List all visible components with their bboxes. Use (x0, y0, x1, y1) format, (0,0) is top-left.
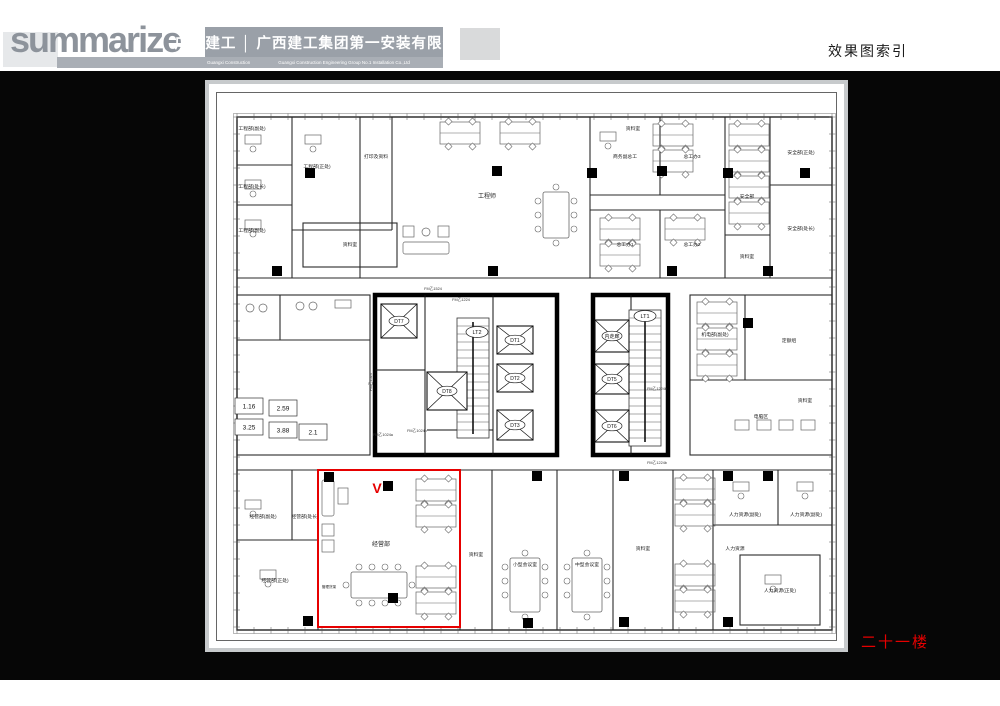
column (763, 471, 773, 481)
desk (797, 482, 813, 499)
room-label: 总工办3 (683, 153, 700, 160)
highlight-box (318, 470, 460, 627)
svg-text:1.16: 1.16 (243, 404, 256, 411)
room-label: 管理货架 (322, 584, 337, 589)
column (763, 266, 773, 276)
room-label: 资料室 (469, 551, 484, 558)
room-label: 工程部(正处) (303, 163, 331, 170)
room-label: 人力资源(正处) (764, 587, 796, 594)
column (523, 618, 533, 628)
column (587, 168, 597, 178)
drawing-sheet: LT2LT1DT7DT8DT1DT2DT3内走廊DT5DT61.162.593.… (205, 80, 848, 652)
workstation-pod (416, 501, 456, 533)
room-label: 人力资源 (725, 545, 744, 552)
page-header: summarize 广西建工 │ 广西建工集团第一安装有限公司 Guangxi … (0, 0, 1000, 71)
desk (305, 135, 321, 152)
door-tag: FM乙1524 (368, 373, 373, 391)
room-label: 安全部(正处) (787, 149, 815, 156)
column (303, 616, 313, 626)
elevator-DT7: DT7 (381, 304, 417, 338)
room-label: 安全部(处长) (787, 225, 815, 232)
conference-table (343, 564, 415, 606)
floor-label: 二十一楼 (861, 631, 929, 652)
header-gray-block (460, 28, 500, 60)
column (723, 617, 733, 627)
door-tag: FM乙1224b (647, 460, 667, 465)
door-tag: FM乙1024b (407, 428, 427, 433)
svg-text:3.25: 3.25 (243, 425, 256, 432)
column (743, 318, 753, 328)
door-tag: FM乙1224b (647, 386, 667, 391)
workstation-pod (697, 350, 737, 382)
column (667, 266, 677, 276)
room-label: 资料室 (626, 125, 641, 132)
svg-text:内走廊: 内走廊 (604, 333, 619, 340)
highlight-marker: V (372, 480, 382, 496)
room-label: 经营部(处长) (291, 513, 319, 520)
workstation-pod (416, 588, 456, 620)
room-label: 中型会议室 (575, 561, 599, 568)
room-label: 工程部(处长) (238, 183, 266, 190)
dimension-box: 3.88 (269, 422, 297, 438)
elevator-DT5: DT5 (595, 364, 629, 394)
room-label: 打印及资料 (364, 153, 388, 160)
floor-plan: LT2LT1DT7DT8DT1DT2DT3内走廊DT5DT61.162.593.… (205, 80, 848, 652)
workstation-pod (500, 118, 540, 150)
conference-table (535, 184, 577, 246)
door-tag: FM乙1524 (424, 286, 442, 291)
room-label: 人力资源(副处) (729, 511, 761, 518)
elevator-DT8: DT8 (427, 372, 467, 410)
svg-text:LT1: LT1 (640, 314, 649, 320)
desk (600, 132, 616, 149)
svg-text:DT3: DT3 (510, 423, 520, 429)
room-label: 商务副总工 (613, 153, 637, 160)
column (532, 471, 542, 481)
room-label: 经营部 (372, 540, 390, 548)
dimension-box: 2.59 (269, 400, 297, 416)
svg-text:DT1: DT1 (510, 338, 520, 344)
column (272, 266, 282, 276)
elevator-内走廊: 内走廊 (595, 320, 629, 352)
column (619, 471, 629, 481)
dimension-box: 1.16 (235, 398, 263, 414)
column (488, 266, 498, 276)
svg-text:DT2: DT2 (510, 376, 520, 382)
door-tag: FM乙1024a (373, 432, 394, 437)
company-name-en-strip: Guangxi Construction Guangxi Constructio… (57, 57, 443, 68)
page-title: 效果图索引 (828, 41, 908, 61)
room-label: 电脑区 (754, 413, 769, 420)
room-label: 经营部(正处) (261, 577, 289, 584)
dimension-box: 3.25 (235, 419, 263, 435)
company-name: 广西建工 │ 广西建工集团第一安装有限公司 (174, 32, 473, 53)
column (723, 168, 733, 178)
logo-text: summarize (10, 22, 180, 58)
room-label: 安全部 (740, 193, 755, 200)
workstation-pod (665, 214, 705, 246)
svg-text:DT8: DT8 (442, 389, 452, 395)
column (800, 168, 810, 178)
room-label: 资料室 (343, 241, 358, 248)
room-label: 机电部(副处) (701, 331, 729, 338)
room-label: 定额组 (782, 337, 797, 344)
company-en-left: Guangxi Construction (207, 60, 250, 65)
column (388, 593, 398, 603)
conference-table (564, 550, 610, 620)
conference-table (502, 550, 548, 620)
room-label: 总工办2 (683, 241, 700, 248)
room-label: 资料室 (798, 397, 813, 404)
room-label: 资料室 (636, 545, 651, 552)
svg-text:DT7: DT7 (394, 319, 404, 325)
column (723, 471, 733, 481)
elevator-DT2: DT2 (497, 364, 533, 392)
room-label: 工程部(副处) (238, 125, 266, 132)
workstation-pod (675, 586, 715, 618)
desk (733, 482, 749, 499)
svg-text:LT2: LT2 (472, 330, 481, 336)
workstation-pod (440, 118, 480, 150)
room-label: 工程部(副处) (238, 227, 266, 234)
company-en-right: Guangxi Construction Engineering Group N… (278, 60, 410, 65)
column (324, 472, 334, 482)
svg-text:3.88: 3.88 (277, 428, 290, 435)
room-label: 人力资源(副处) (790, 511, 822, 518)
room-label: 工程师 (478, 192, 496, 200)
svg-text:2.1: 2.1 (308, 430, 317, 437)
door-tag: FM乙1224 (452, 297, 470, 302)
company-name-box: 广西建工 │ 广西建工集团第一安装有限公司 (205, 27, 443, 57)
workstation-pod (729, 198, 769, 230)
highlight-region[interactable]: V (318, 470, 460, 627)
elevator-DT1: DT1 (497, 326, 533, 354)
column (492, 166, 502, 176)
elevator-DT3: DT3 (497, 410, 533, 440)
room-label: 经营部(副处) (249, 513, 277, 520)
room-label: 小型会议室 (513, 561, 537, 568)
column (619, 617, 629, 627)
room-label: 总工办1 (616, 241, 633, 248)
drawing-canvas: LT2LT1DT7DT8DT1DT2DT3内走廊DT5DT61.162.593.… (0, 71, 1000, 680)
svg-text:DT6: DT6 (607, 424, 617, 430)
stair-LT1: LT1 (629, 310, 661, 446)
column (657, 166, 667, 176)
dimension-box: 2.1 (299, 424, 327, 440)
svg-text:DT5: DT5 (607, 377, 617, 383)
workstation-pod (675, 500, 715, 532)
svg-text:2.59: 2.59 (277, 406, 290, 413)
column (383, 481, 393, 491)
desk (245, 135, 261, 152)
elevator-DT6: DT6 (595, 410, 629, 442)
room-label: 资料室 (740, 253, 755, 260)
